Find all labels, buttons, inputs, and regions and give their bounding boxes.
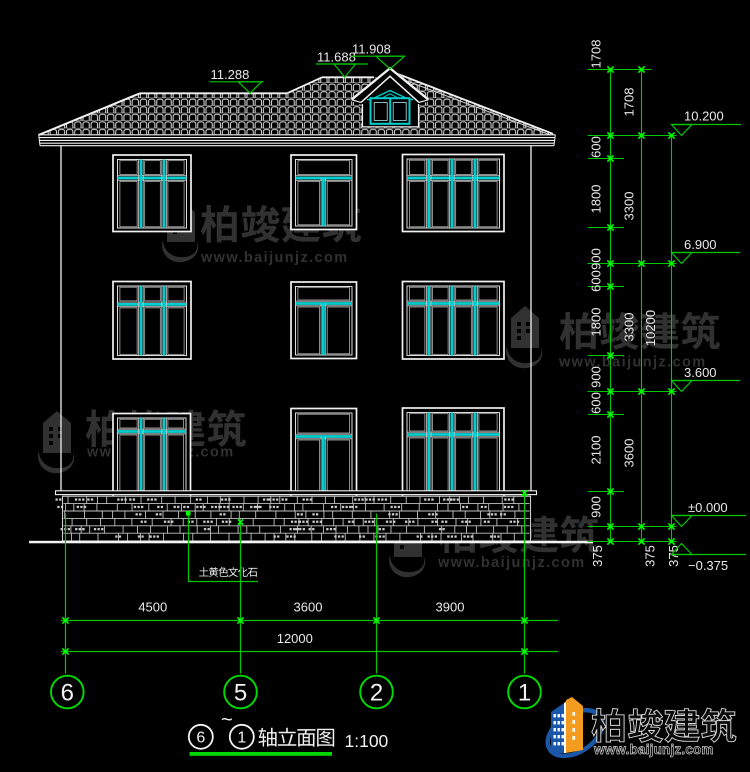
svg-text:12000: 12000: [277, 631, 313, 646]
svg-text:11.688: 11.688: [317, 49, 356, 64]
svg-text:~: ~: [221, 709, 233, 731]
svg-text:900: 900: [588, 248, 603, 270]
svg-text:±0.000: ±0.000: [688, 500, 728, 515]
svg-text:3300: 3300: [621, 313, 636, 342]
svg-text:1:100: 1:100: [345, 731, 389, 751]
svg-text:10.200: 10.200: [684, 109, 724, 124]
svg-text:www.baijunjz.com: www.baijunjz.com: [593, 742, 714, 757]
svg-text:1800: 1800: [588, 185, 603, 214]
svg-text:1: 1: [518, 680, 531, 707]
svg-text:www.baijunjz.com: www.baijunjz.com: [200, 250, 349, 266]
svg-text:375: 375: [590, 545, 605, 567]
svg-text:1800: 1800: [588, 308, 603, 337]
svg-text:10200: 10200: [643, 310, 658, 346]
svg-text:3.600: 3.600: [684, 365, 717, 380]
svg-text:−0.375: −0.375: [688, 558, 728, 573]
svg-text:1: 1: [237, 730, 246, 747]
svg-text:6: 6: [61, 680, 74, 707]
svg-text:900: 900: [588, 366, 603, 388]
svg-text:1708: 1708: [621, 88, 636, 117]
svg-text:600: 600: [588, 270, 603, 292]
svg-text:600: 600: [588, 392, 603, 414]
svg-text:6.900: 6.900: [684, 237, 717, 252]
svg-text:3600: 3600: [294, 600, 323, 615]
svg-text:11.288: 11.288: [211, 67, 250, 82]
svg-text:5: 5: [234, 680, 247, 707]
svg-text:2100: 2100: [588, 436, 603, 465]
svg-text:www.baijunjz.com: www.baijunjz.com: [437, 555, 586, 571]
svg-text:3600: 3600: [621, 439, 636, 468]
svg-text:2: 2: [370, 680, 383, 707]
svg-text:11.908: 11.908: [352, 42, 391, 57]
svg-text:900: 900: [588, 496, 603, 518]
svg-text:3300: 3300: [621, 192, 636, 221]
svg-text:4500: 4500: [138, 600, 167, 615]
svg-text:3900: 3900: [436, 600, 465, 615]
svg-text:1708: 1708: [588, 40, 603, 69]
svg-text:375: 375: [642, 545, 657, 567]
svg-text:375: 375: [666, 545, 681, 567]
svg-text:600: 600: [588, 136, 603, 158]
svg-text:6: 6: [196, 730, 205, 747]
